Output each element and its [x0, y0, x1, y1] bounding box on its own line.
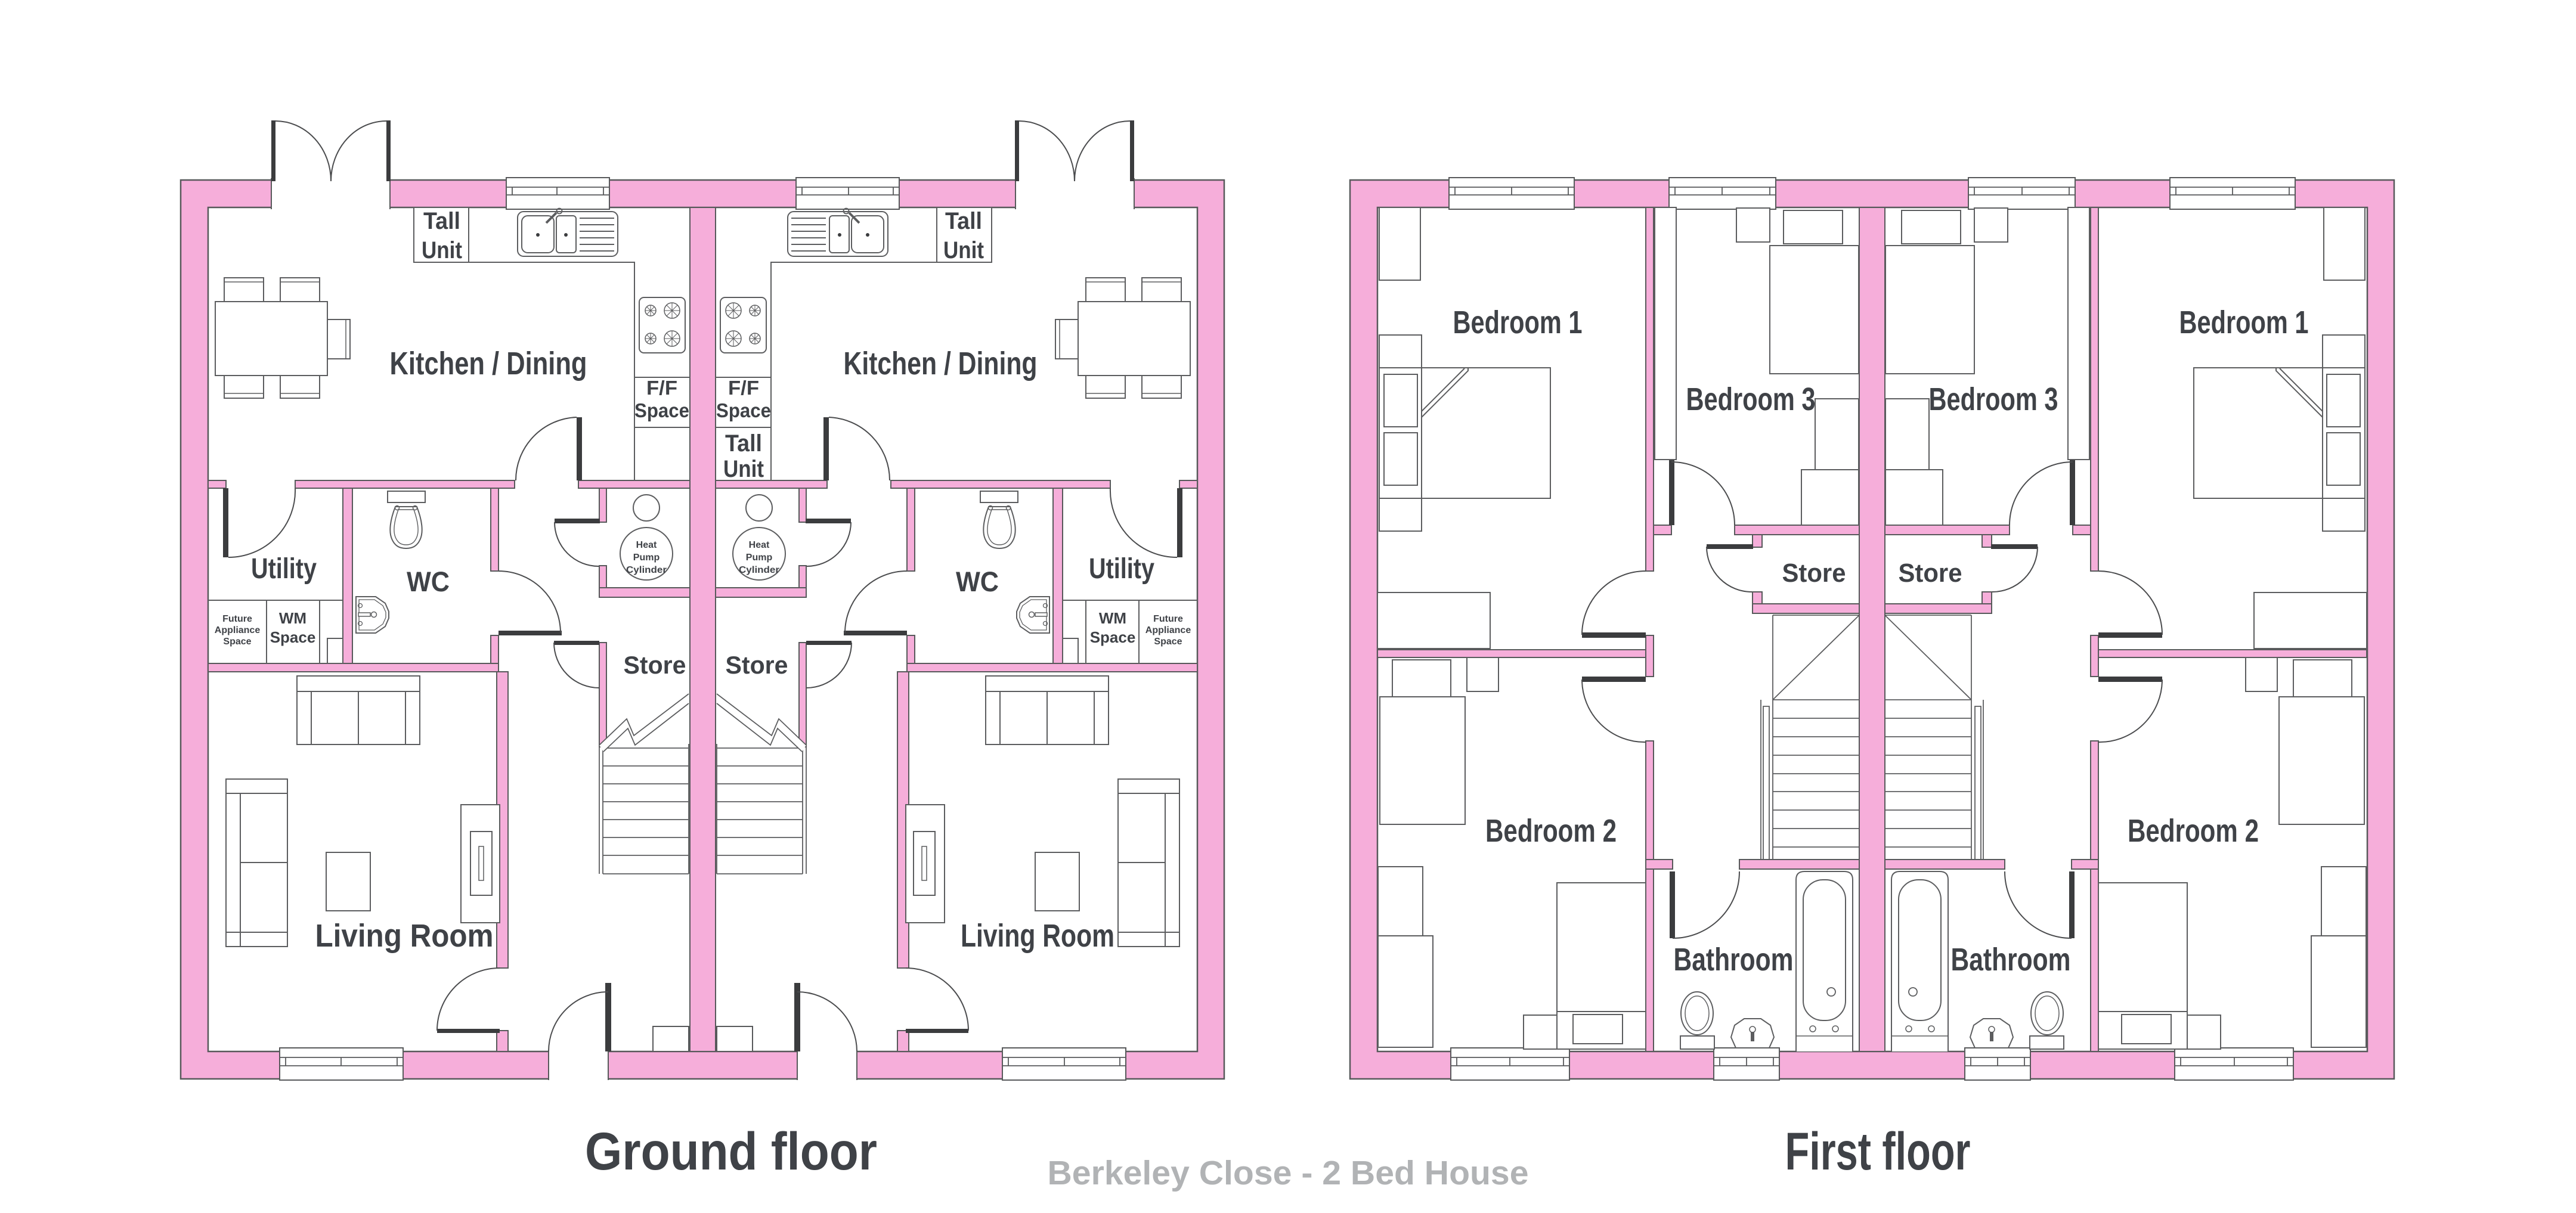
svg-text:Space: Space: [270, 628, 316, 646]
svg-text:Bedroom 3: Bedroom 3: [1686, 381, 1816, 417]
svg-text:Store: Store: [624, 651, 686, 679]
svg-text:WC: WC: [407, 566, 450, 597]
svg-text:Store: Store: [1899, 559, 1962, 588]
svg-text:WM: WM: [1099, 609, 1126, 627]
svg-text:Future: Future: [222, 614, 252, 624]
svg-text:Space: Space: [223, 637, 251, 647]
svg-text:Bathroom: Bathroom: [1674, 942, 1794, 978]
svg-text:Appliance: Appliance: [215, 625, 261, 635]
svg-text:Tall: Tall: [725, 430, 762, 457]
svg-text:Kitchen / Dining: Kitchen / Dining: [844, 346, 1038, 381]
svg-text:WC: WC: [956, 566, 999, 597]
svg-text:Bedroom 1: Bedroom 1: [1453, 305, 1583, 340]
svg-text:Berkeley Close - 2 Bed House: Berkeley Close - 2 Bed House: [1048, 1154, 1529, 1192]
svg-text:Utility: Utility: [251, 553, 317, 585]
svg-text:Living Room: Living Room: [961, 918, 1114, 954]
svg-text:Unit: Unit: [943, 237, 984, 263]
svg-text:Cylinder: Cylinder: [626, 565, 667, 575]
svg-text:Bathroom: Bathroom: [1951, 942, 2071, 978]
svg-text:Future: Future: [1153, 614, 1183, 624]
svg-text:Bedroom 2: Bedroom 2: [2128, 813, 2259, 849]
svg-text:WM: WM: [279, 609, 306, 627]
svg-text:Space: Space: [1090, 628, 1136, 646]
svg-text:Utility: Utility: [1089, 553, 1154, 585]
svg-text:Tall: Tall: [945, 208, 982, 234]
svg-text:Cylinder: Cylinder: [739, 565, 779, 575]
svg-text:Unit: Unit: [422, 237, 462, 263]
svg-text:Heat: Heat: [749, 540, 770, 550]
svg-text:Pump: Pump: [633, 553, 660, 563]
svg-text:Ground floor: Ground floor: [585, 1121, 877, 1181]
svg-text:F/F: F/F: [646, 377, 677, 399]
svg-text:Living Room: Living Room: [315, 918, 494, 954]
svg-text:Store: Store: [726, 651, 788, 679]
svg-text:Appliance: Appliance: [1145, 625, 1191, 635]
svg-text:Space: Space: [634, 399, 689, 421]
svg-text:Unit: Unit: [723, 456, 764, 482]
svg-text:Tall: Tall: [423, 208, 460, 234]
svg-text:Space: Space: [716, 399, 771, 421]
svg-text:Store: Store: [1782, 559, 1846, 588]
svg-text:Kitchen / Dining: Kitchen / Dining: [390, 346, 587, 381]
svg-text:Bedroom 1: Bedroom 1: [2179, 305, 2309, 340]
svg-text:Space: Space: [1154, 637, 1182, 647]
svg-text:Pump: Pump: [746, 553, 773, 563]
svg-text:First floor: First floor: [1785, 1121, 1971, 1181]
svg-text:Bedroom 2: Bedroom 2: [1485, 813, 1617, 849]
svg-text:Bedroom 3: Bedroom 3: [1929, 381, 2058, 417]
svg-text:F/F: F/F: [728, 377, 759, 399]
svg-text:Heat: Heat: [636, 540, 657, 550]
